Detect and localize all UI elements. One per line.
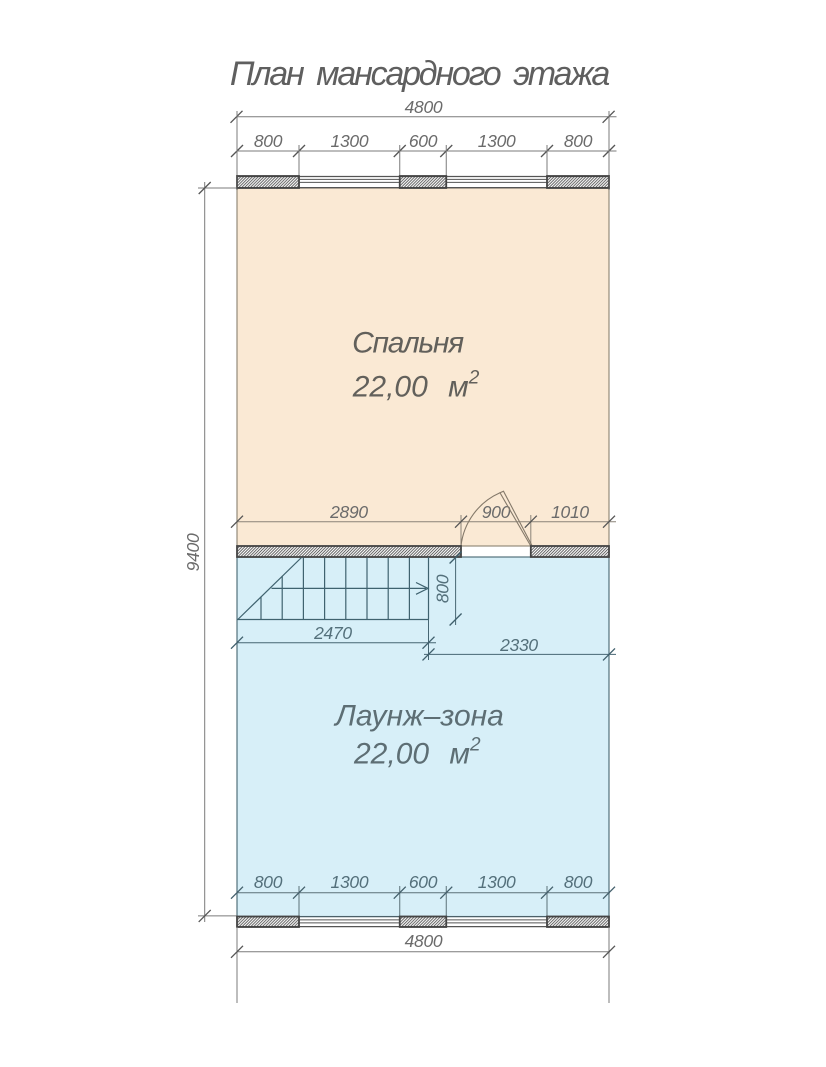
svg-text:Спальня: Спальня — [352, 327, 464, 360]
svg-text:2470: 2470 — [313, 623, 352, 643]
svg-text:22,00 м2: 22,00 м2 — [353, 734, 481, 770]
svg-text:2330: 2330 — [499, 635, 538, 655]
svg-text:1300: 1300 — [478, 131, 516, 151]
svg-text:1300: 1300 — [331, 872, 369, 892]
svg-text:1300: 1300 — [331, 131, 369, 151]
svg-text:800: 800 — [433, 574, 453, 603]
svg-text:Лаунж–зона: Лаунж–зона — [333, 700, 504, 733]
svg-text:800: 800 — [564, 131, 593, 151]
svg-text:800: 800 — [564, 872, 593, 892]
svg-text:22,00 м2: 22,00 м2 — [352, 367, 480, 403]
svg-text:900: 900 — [482, 502, 511, 522]
svg-text:4800: 4800 — [405, 931, 443, 951]
svg-text:600: 600 — [409, 131, 438, 151]
svg-text:600: 600 — [409, 872, 438, 892]
svg-text:2890: 2890 — [329, 502, 368, 522]
svg-text:1010: 1010 — [551, 502, 589, 522]
svg-text:800: 800 — [254, 131, 283, 151]
svg-text:9400: 9400 — [183, 533, 203, 571]
svg-text:План мансардного этажа: План мансардного этажа — [230, 55, 610, 93]
svg-text:800: 800 — [254, 872, 283, 892]
svg-text:1300: 1300 — [478, 872, 516, 892]
svg-text:4800: 4800 — [405, 97, 443, 117]
